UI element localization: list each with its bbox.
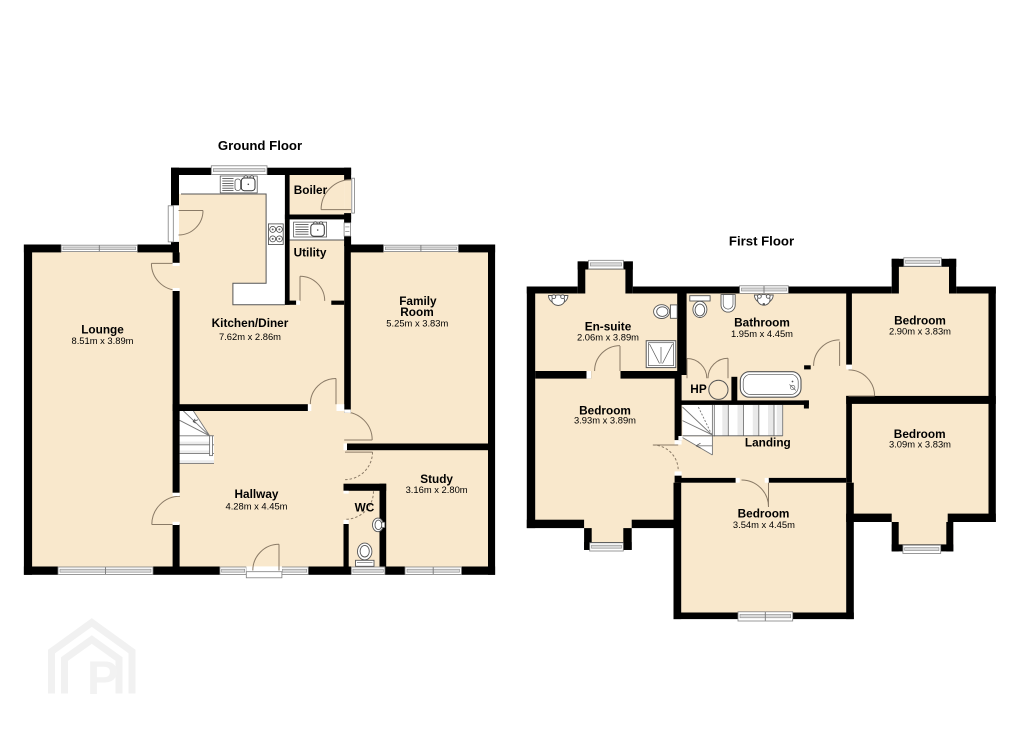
svg-text:3.09m x 3.83m: 3.09m x 3.83m [889,438,951,449]
svg-text:2.06m x 3.89m: 2.06m x 3.89m [577,332,639,343]
svg-text:3.93m x 3.89m: 3.93m x 3.89m [574,415,636,426]
svg-text:4.28m x 4.45m: 4.28m x 4.45m [225,501,287,512]
svg-text:First Floor: First Floor [729,234,794,249]
svg-text:Boiler: Boiler [294,183,328,197]
svg-text:HP: HP [690,382,707,396]
svg-text:3.16m x 2.80m: 3.16m x 2.80m [406,484,468,495]
svg-text:1.95m x 4.45m: 1.95m x 4.45m [731,328,793,339]
svg-text:Hallway: Hallway [235,487,279,501]
svg-text:P: P [87,651,118,704]
svg-text:7.62m x 2.86m: 7.62m x 2.86m [219,331,281,342]
svg-text:Ground Floor: Ground Floor [218,138,302,153]
svg-text:Landing: Landing [745,436,791,450]
svg-text:Kitchen/Diner: Kitchen/Diner [212,316,289,330]
svg-text:5.25m x 3.83m: 5.25m x 3.83m [386,318,448,329]
svg-text:2.90m x 3.83m: 2.90m x 3.83m [889,326,951,337]
svg-text:3.54m x 4.45m: 3.54m x 4.45m [733,519,795,530]
svg-text:Utility: Utility [294,245,327,259]
svg-text:WC: WC [355,501,375,515]
svg-text:8.51m x 3.89m: 8.51m x 3.89m [71,335,133,346]
